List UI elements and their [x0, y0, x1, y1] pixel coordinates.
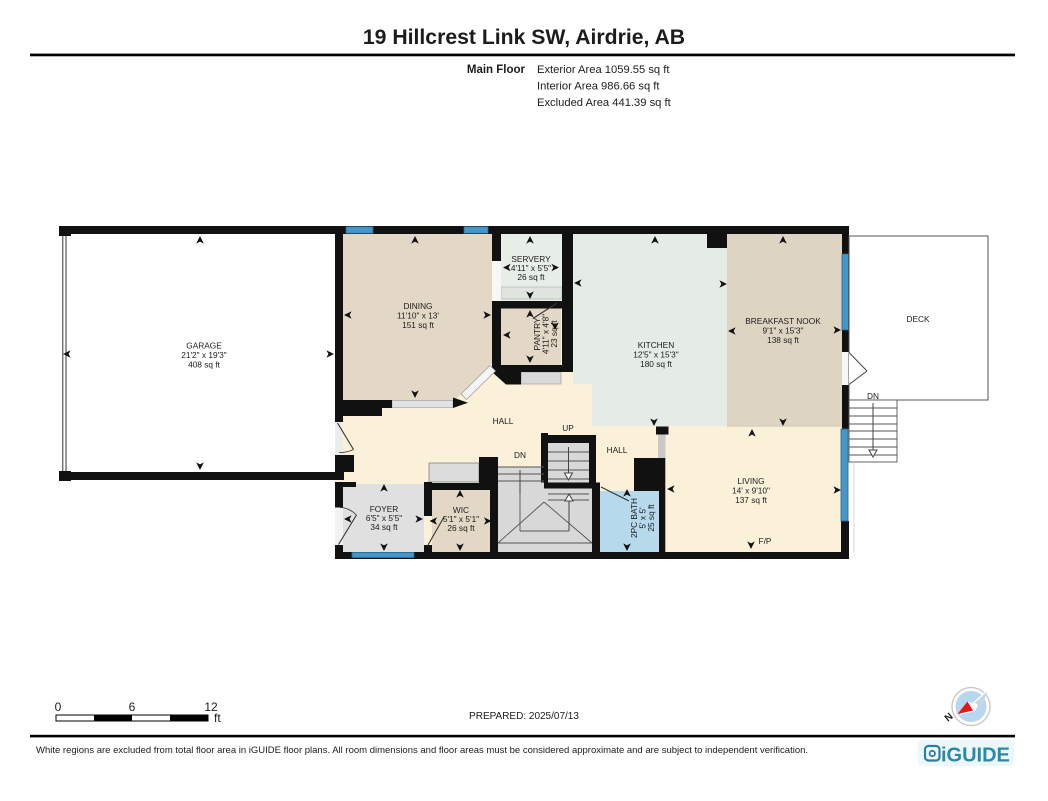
- svg-text:137 sq ft: 137 sq ft: [735, 495, 768, 505]
- svg-text:151 sq ft: 151 sq ft: [402, 320, 435, 330]
- svg-text:DECK: DECK: [906, 314, 930, 324]
- svg-text:GARAGE: GARAGE: [186, 341, 222, 351]
- svg-text:12'5" x 15'3": 12'5" x 15'3": [633, 350, 679, 360]
- svg-text:0: 0: [55, 700, 62, 714]
- svg-text:DN: DN: [867, 391, 879, 401]
- svg-text:25 sq ft: 25 sq ft: [646, 504, 656, 532]
- svg-text:180 sq ft: 180 sq ft: [640, 359, 673, 369]
- svg-text:6: 6: [129, 700, 136, 714]
- svg-text:F/P: F/P: [759, 536, 772, 546]
- svg-text:DN: DN: [514, 450, 526, 460]
- svg-text:DINING: DINING: [403, 301, 432, 311]
- svg-text:BREAKFAST NOOK: BREAKFAST NOOK: [745, 316, 821, 326]
- svg-text:23 sq ft: 23 sq ft: [549, 320, 559, 348]
- svg-text:PREPARED: 2025/07/13: PREPARED: 2025/07/13: [469, 711, 579, 722]
- svg-text:UP: UP: [562, 423, 574, 433]
- svg-text:138 sq ft: 138 sq ft: [767, 335, 800, 345]
- svg-text:19 Hillcrest Link SW, Airdrie,: 19 Hillcrest Link SW, Airdrie, AB: [363, 26, 685, 49]
- svg-text:14' x 9'10": 14' x 9'10": [732, 486, 770, 496]
- svg-text:HALL: HALL: [607, 445, 628, 455]
- svg-text:Main Floor: Main Floor: [467, 64, 526, 76]
- svg-text:408 sq ft: 408 sq ft: [188, 360, 221, 370]
- svg-text:Interior Area 986.66 sq ft: Interior Area 986.66 sq ft: [537, 81, 660, 93]
- svg-text:26 sq ft: 26 sq ft: [517, 272, 545, 282]
- svg-text:KITCHEN: KITCHEN: [638, 340, 674, 350]
- svg-text:9'1" x 15'3": 9'1" x 15'3": [763, 326, 804, 336]
- svg-text:iGUIDE: iGUIDE: [941, 745, 1010, 767]
- svg-text:11'10" x 13': 11'10" x 13': [397, 311, 439, 321]
- svg-text:21'2" x 19'3": 21'2" x 19'3": [181, 350, 227, 360]
- svg-text:ft: ft: [214, 711, 221, 725]
- svg-text:Excluded Area 441.39 sq ft: Excluded Area 441.39 sq ft: [537, 97, 672, 109]
- svg-text:HALL: HALL: [493, 416, 514, 426]
- svg-text:Exterior Area 1059.55 sq ft: Exterior Area 1059.55 sq ft: [537, 64, 670, 76]
- svg-text:LIVING: LIVING: [737, 476, 764, 486]
- svg-text:White regions are excluded fro: White regions are excluded from total fl…: [36, 745, 808, 756]
- svg-text:34 sq ft: 34 sq ft: [370, 522, 398, 532]
- svg-text:26 sq ft: 26 sq ft: [447, 523, 475, 533]
